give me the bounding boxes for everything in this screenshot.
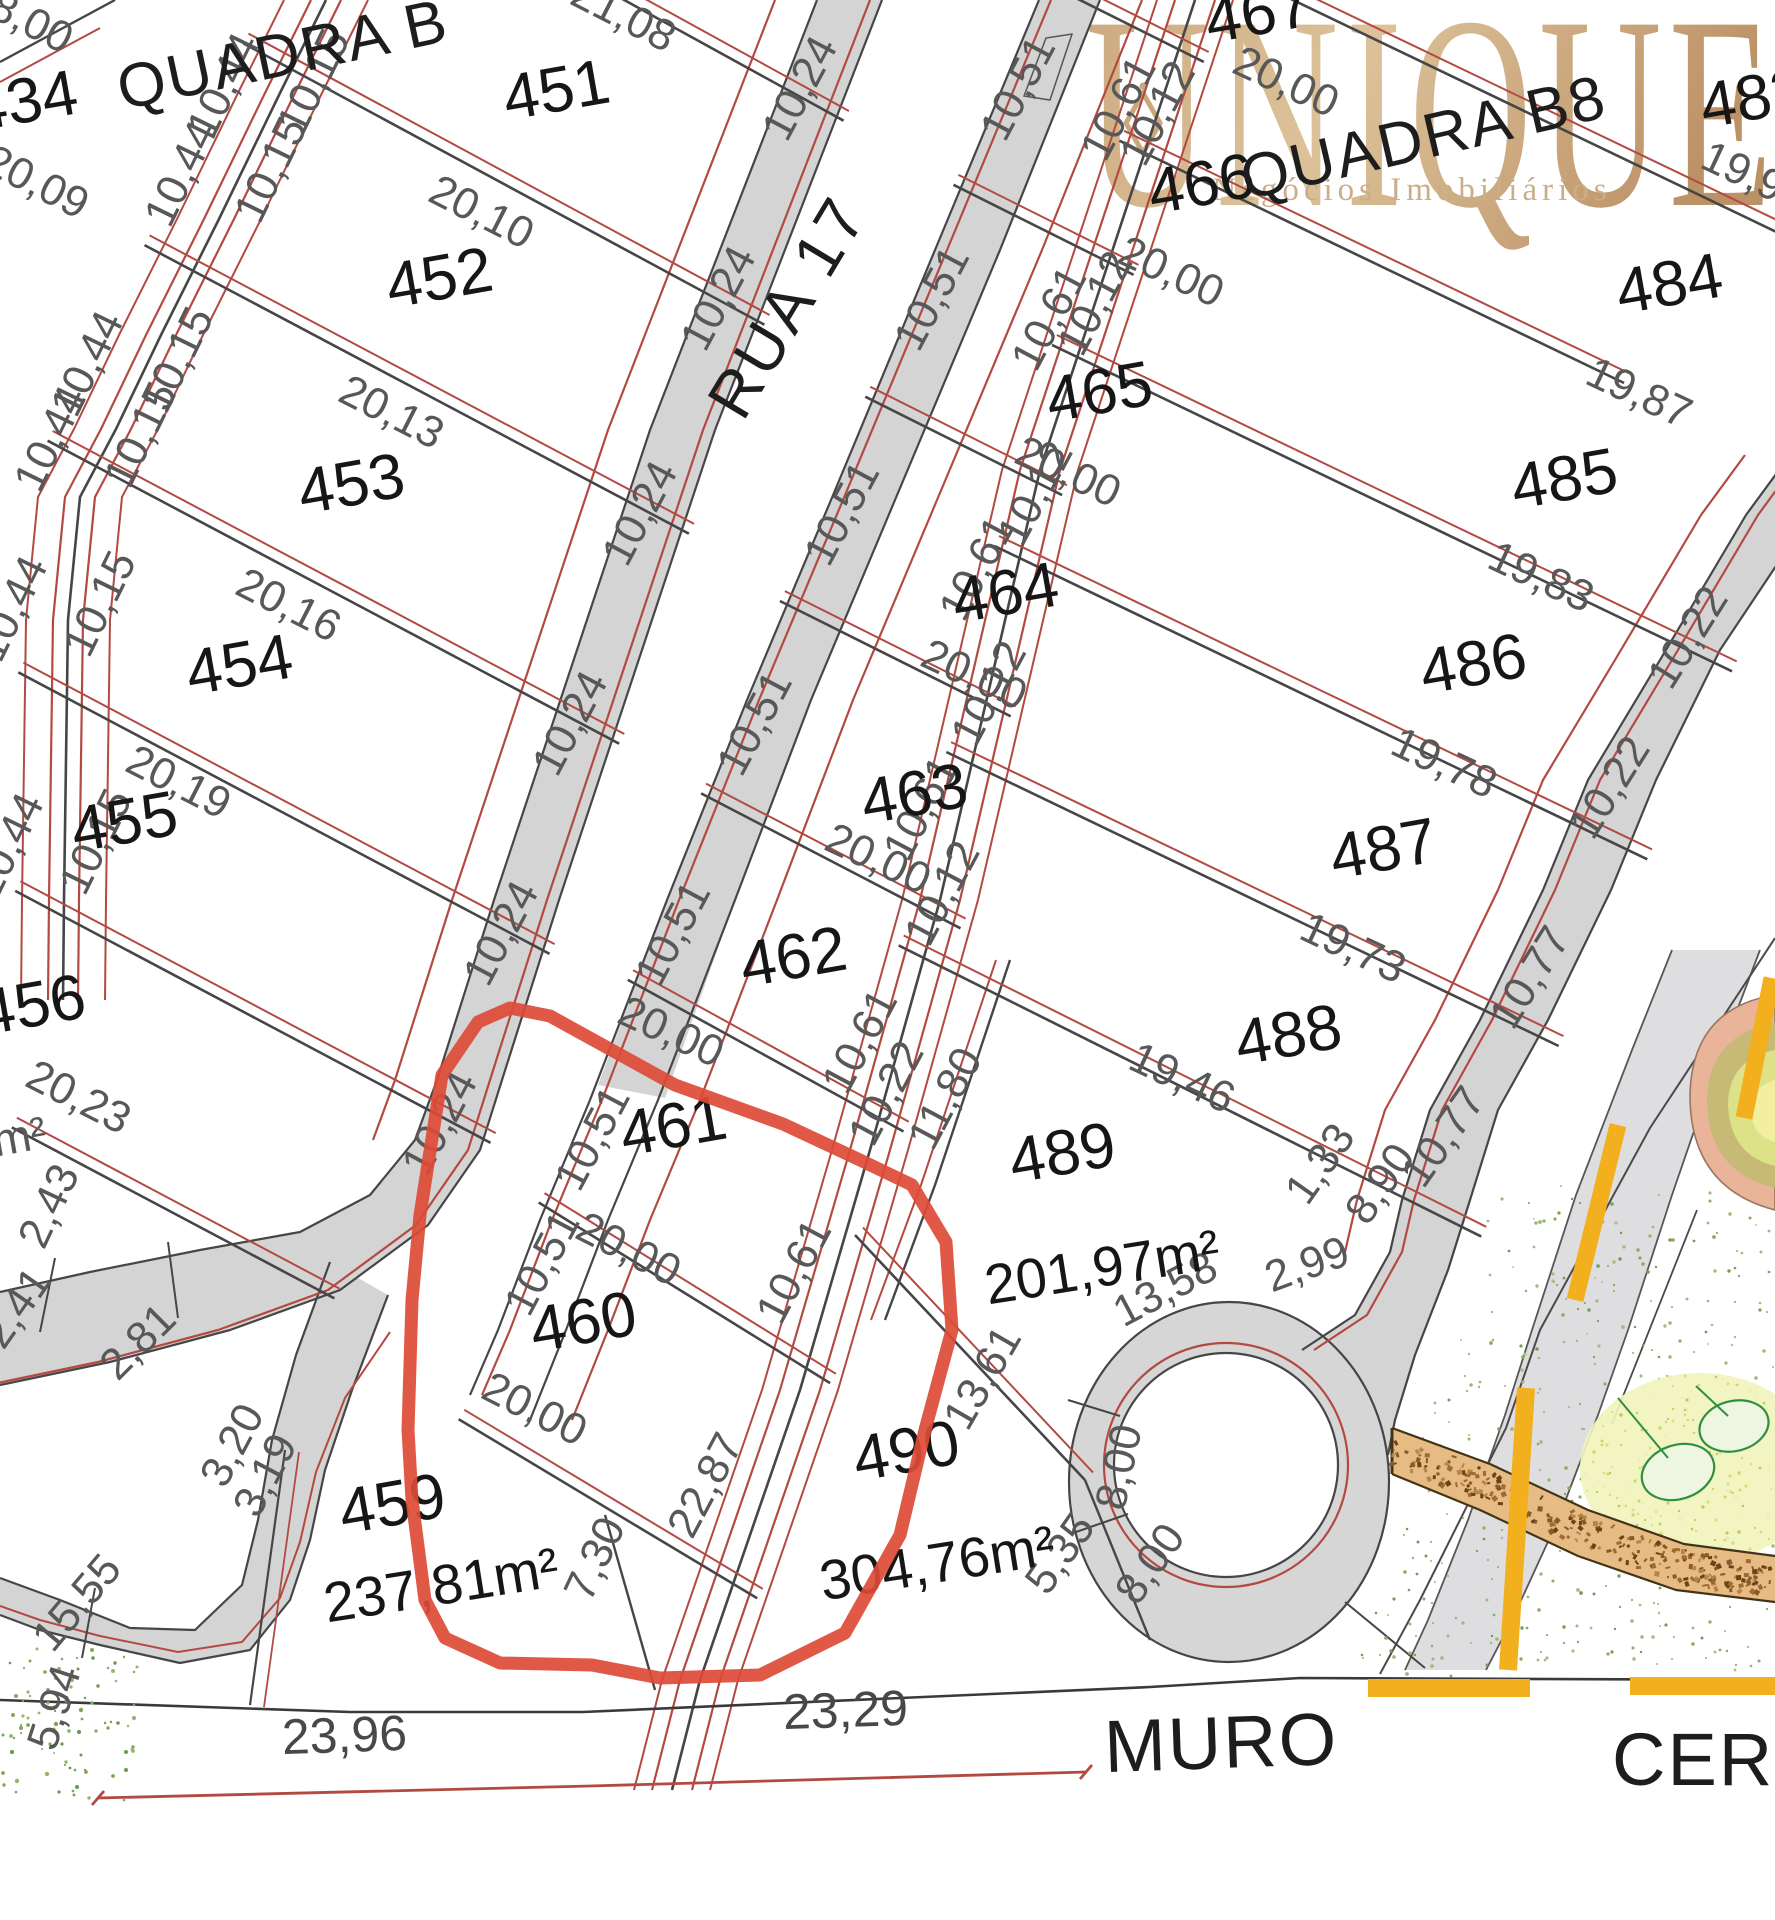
- svg-text:m²: m²: [0, 1106, 50, 1167]
- svg-text:23,96: 23,96: [281, 1705, 408, 1765]
- svg-text:23,29: 23,29: [782, 1680, 909, 1740]
- svg-text:CERCA: CERCA: [1612, 1718, 1775, 1801]
- svg-text:MURO: MURO: [1103, 1697, 1340, 1788]
